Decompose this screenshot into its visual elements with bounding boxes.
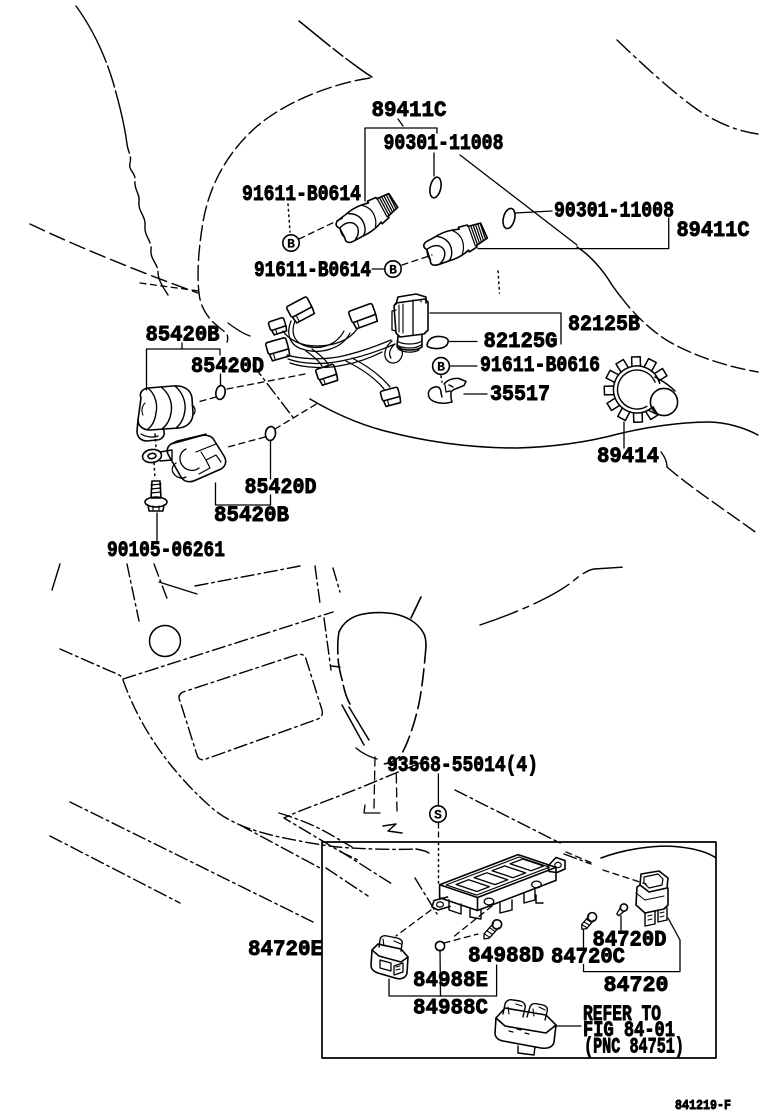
svg-text:91611-B0614: 91611-B0614 — [254, 258, 371, 283]
svg-text:89414: 89414 — [597, 444, 659, 469]
svg-text:90301-11008: 90301-11008 — [554, 199, 674, 224]
svg-text:89411C: 89411C — [677, 218, 750, 243]
svg-text:85420D: 85420D — [245, 475, 317, 500]
svg-text:35517: 35517 — [490, 382, 550, 407]
svg-text:841219-F: 841219-F — [675, 1099, 731, 1112]
svg-text:85420D: 85420D — [191, 354, 264, 379]
svg-text:84720: 84720 — [604, 973, 669, 998]
svg-text:89411C: 89411C — [372, 98, 447, 123]
svg-text:B: B — [389, 263, 397, 278]
svg-text:93568-55014(4): 93568-55014(4) — [387, 753, 538, 778]
svg-text:82125G: 82125G — [484, 329, 558, 354]
svg-text:90301-11008: 90301-11008 — [384, 131, 504, 156]
svg-text:85420B: 85420B — [214, 503, 289, 528]
svg-text:84988C: 84988C — [413, 996, 488, 1021]
svg-text:B: B — [437, 360, 445, 375]
svg-text:91611-B0616: 91611-B0616 — [480, 353, 600, 378]
svg-text:90105-06261: 90105-06261 — [107, 538, 225, 563]
svg-text:84988D: 84988D — [468, 944, 544, 969]
svg-text:B: B — [287, 237, 295, 252]
svg-text:S: S — [434, 808, 442, 823]
svg-text:84720E: 84720E — [248, 937, 323, 962]
svg-text:84988E: 84988E — [413, 968, 488, 993]
svg-text:(PNC 84751): (PNC 84751) — [584, 1035, 684, 1060]
svg-text:82125B: 82125B — [568, 312, 640, 337]
svg-text:84720D: 84720D — [593, 928, 667, 953]
svg-text:91611-B0614: 91611-B0614 — [242, 182, 361, 207]
